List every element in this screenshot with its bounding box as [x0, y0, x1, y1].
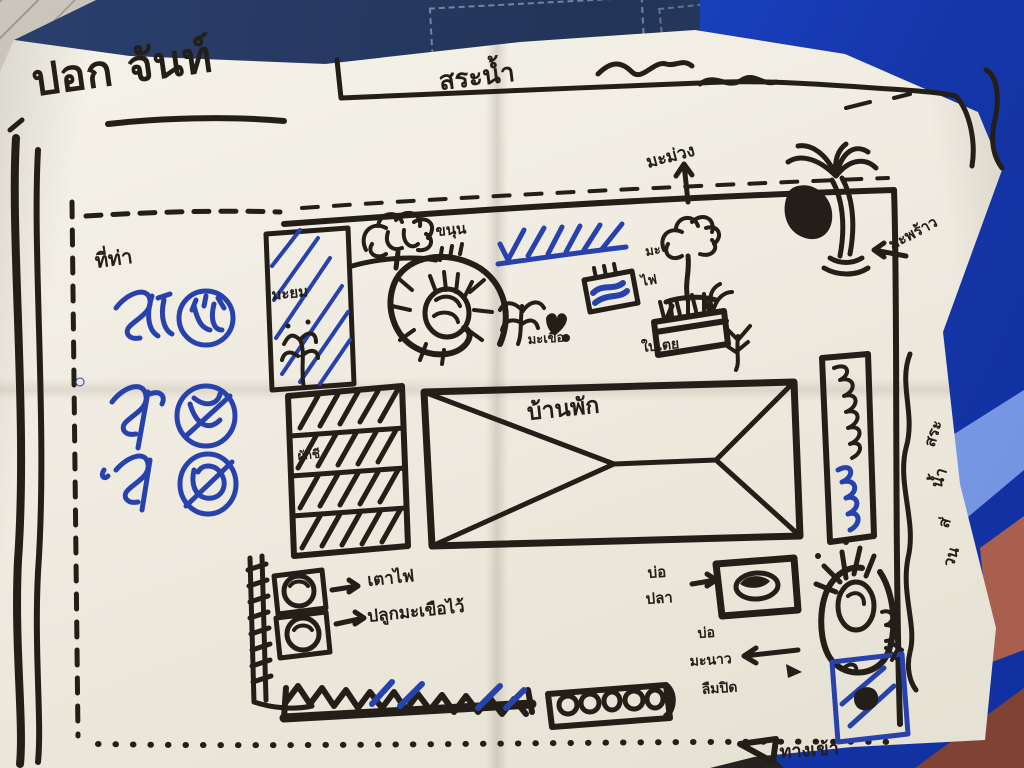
- lime-label-1: บ่อ: [697, 625, 715, 642]
- fish-pond-label-1: บ่อ: [647, 563, 667, 582]
- stone: [647, 690, 663, 708]
- stone: [625, 691, 643, 709]
- fence-top-left-dashed: [86, 211, 280, 216]
- legend-circle-1-mark: [192, 296, 224, 330]
- right-pond-label-4: วน: [939, 544, 963, 569]
- spiral-center-scribble: [434, 297, 460, 322]
- mafai-label-2: ไฟ: [638, 270, 658, 290]
- burner-arc: [294, 626, 312, 631]
- mango-arrow-group: มะม่วง: [644, 141, 697, 202]
- water-squiggle: [598, 63, 692, 75]
- house-roof-lines: [424, 382, 800, 546]
- title-underline: [108, 118, 284, 124]
- right-structure-group: [822, 354, 874, 542]
- structure-scribble: [834, 366, 860, 458]
- right-arrow: [692, 574, 716, 586]
- blue-hatch-marks: [498, 224, 626, 264]
- road-dashes: [846, 94, 910, 108]
- small-arrowhead: [786, 664, 802, 678]
- spiral-mound-group: [391, 257, 506, 364]
- tree-trunk: [666, 256, 716, 316]
- blue-sign-box: [584, 264, 638, 312]
- spiral-outer: [391, 257, 506, 355]
- legend-circle-2-mark: [186, 394, 230, 436]
- road-tick: [10, 120, 22, 130]
- spiral-rays: [392, 272, 492, 364]
- hand-drawn-map: ปอก จันท์ สระน้ำ: [0, 0, 1024, 768]
- veg-rows-group: ผักชี: [288, 386, 408, 556]
- planting-note-label: ปลูกมะเขือไว้: [366, 596, 465, 628]
- stone: [581, 694, 599, 712]
- right-arrows: [332, 580, 364, 624]
- jackfruit-label: ขนุน: [435, 219, 468, 241]
- paper-corner-hook: [986, 70, 1002, 168]
- burner-arc: [290, 582, 308, 587]
- stove-group: เตาไฟ ปลูกมะเขือไว้: [248, 556, 466, 708]
- structure-blue-scribble: [838, 468, 858, 530]
- lime-label-3: ลืมปิด: [701, 680, 738, 698]
- left-note-label: ที่ท่า: [93, 241, 134, 273]
- hatched-bed-group: มะยม: [266, 228, 354, 390]
- legend-symbol-1: [116, 292, 172, 338]
- stove-label: เตาไฟ: [366, 565, 415, 591]
- bed-note-label: มะยม: [271, 282, 309, 304]
- right-pond-label-1: สระ: [920, 418, 946, 450]
- house-label: บ้านพัก: [526, 393, 601, 426]
- photo-of-hand-drawn-map: ปอก จันท์ สระน้ำ: [0, 0, 1024, 768]
- property-fence: [72, 178, 900, 745]
- legend-symbol-2: [112, 387, 163, 448]
- lime-label-2: มะนาว: [689, 651, 732, 670]
- tree-canopy: [662, 217, 719, 258]
- eggplant-label: มะเขือ: [527, 329, 565, 348]
- side-plant: [724, 326, 750, 370]
- right-pond-group: สระ น้ำ ส่ วน: [904, 354, 963, 690]
- eggplant-group: มะเขือ: [500, 302, 570, 348]
- stone: [559, 696, 577, 714]
- road-line-inner: [37, 150, 42, 762]
- road-line-outer: [15, 138, 21, 764]
- plant-dot: [306, 320, 311, 325]
- fish-pond-label-2: ปลา: [645, 588, 673, 608]
- coconut-palm-group: มะพร้าว: [785, 144, 941, 274]
- plant-dot: [286, 324, 291, 329]
- mafai-label-1: มะ: [644, 242, 662, 259]
- ring-scribble: [848, 593, 864, 604]
- pond-edge-wavy: [904, 354, 916, 690]
- entrance-triangle: [740, 739, 776, 762]
- dot: [815, 553, 821, 559]
- palm-fronds: [788, 144, 876, 176]
- left-legend: ที่ท่า: [76, 241, 236, 514]
- dot: [843, 539, 849, 545]
- legend-circle-3-mark: [186, 462, 232, 506]
- right-pond-label-2: น้ำ: [924, 464, 951, 490]
- ring-inner: [838, 582, 874, 630]
- map-title: ปอก จันท์: [28, 31, 215, 107]
- right-pond-label-3: ส่: [934, 515, 955, 530]
- top-road-corner: [956, 96, 973, 166]
- hedge-group: [284, 682, 673, 727]
- veg-rows-label: ผักชี: [297, 447, 321, 463]
- left-arrow: [744, 648, 798, 663]
- top-road-line: [337, 60, 956, 98]
- sign-blue-scribble: [593, 283, 627, 303]
- palm-roots: [824, 258, 868, 274]
- stove-burner-2: [287, 618, 319, 650]
- stone: [604, 692, 620, 710]
- left-road: [10, 120, 41, 764]
- fence-left-dashed: [72, 202, 78, 736]
- entrance-group: ทางเข้า: [740, 738, 840, 763]
- house-group: บ้านพัก: [424, 382, 800, 546]
- legend-dot: [76, 378, 84, 386]
- entrance-label: ทางเข้า: [779, 738, 840, 763]
- fish-pond-group: บ่อ ปลา: [645, 558, 798, 616]
- blue-hatch-group: [498, 224, 626, 264]
- legend-symbol-3: [102, 456, 150, 510]
- title-group: ปอก จันท์: [28, 31, 284, 124]
